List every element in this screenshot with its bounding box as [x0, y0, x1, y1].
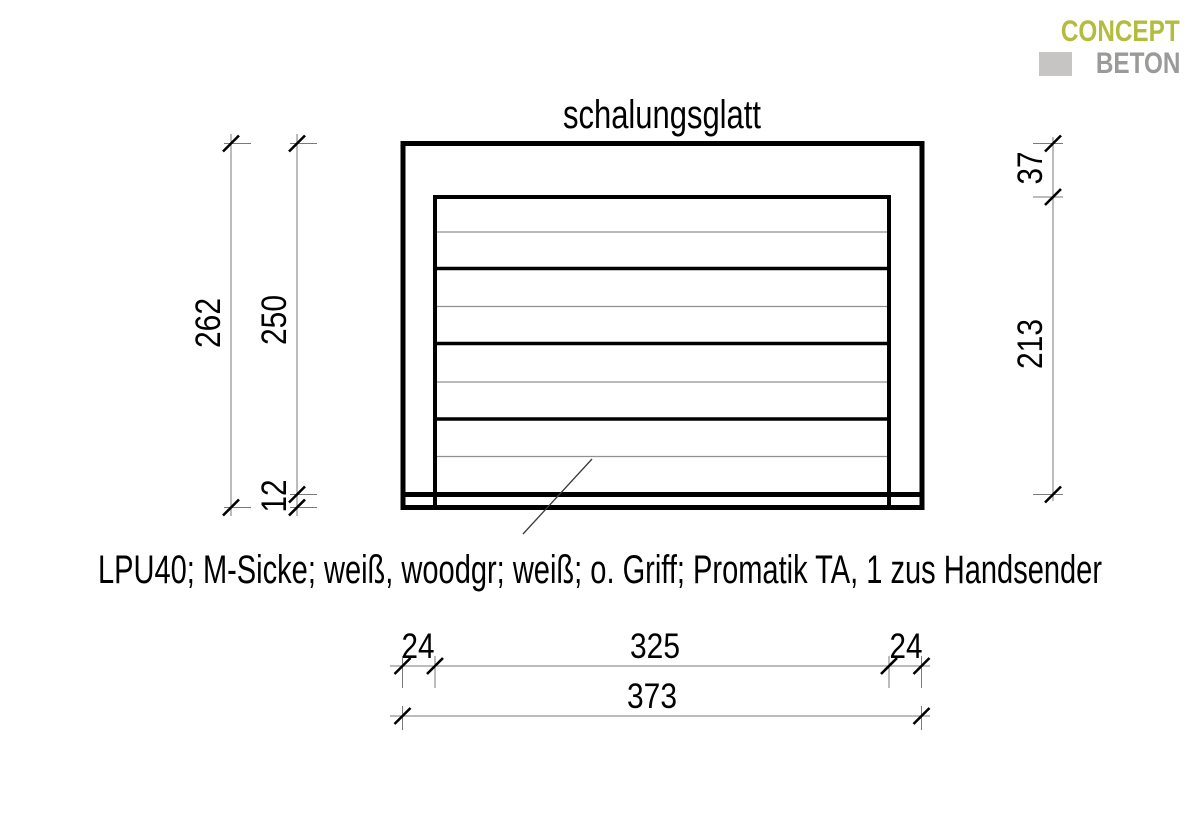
- dim-left-opening-height: 250 12: [255, 134, 317, 516]
- dim-label-floor-offset: 12: [255, 480, 294, 513]
- dim-label-opening-height: 250: [255, 295, 294, 345]
- drawing-title: schalungsglatt: [563, 93, 761, 137]
- dim-bottom-total-width: 373: [390, 677, 930, 730]
- dim-label-opening-width: 325: [630, 627, 680, 666]
- dim-label-jamb-left: 24: [402, 627, 435, 666]
- dim-label-lintel-height: 37: [1011, 152, 1050, 185]
- dim-label-total-width: 373: [627, 677, 677, 716]
- dim-label-jamb-right: 24: [890, 627, 923, 666]
- door-spec-text: LPU40; M-Sicke; weiß, woodgr; weiß; o. G…: [98, 548, 1102, 592]
- drawing-page: CONCEPT BETON schalungsglatt: [0, 0, 1200, 826]
- dim-right-door-height: 37 213: [1011, 136, 1063, 503]
- dim-left-total-height: 262: [189, 134, 251, 516]
- garage-door-panel: [435, 197, 889, 508]
- technical-drawing-canvas: schalungsglatt 262: [0, 0, 1200, 826]
- dim-label-total-height: 262: [189, 298, 228, 348]
- dim-label-door-height: 213: [1011, 319, 1050, 369]
